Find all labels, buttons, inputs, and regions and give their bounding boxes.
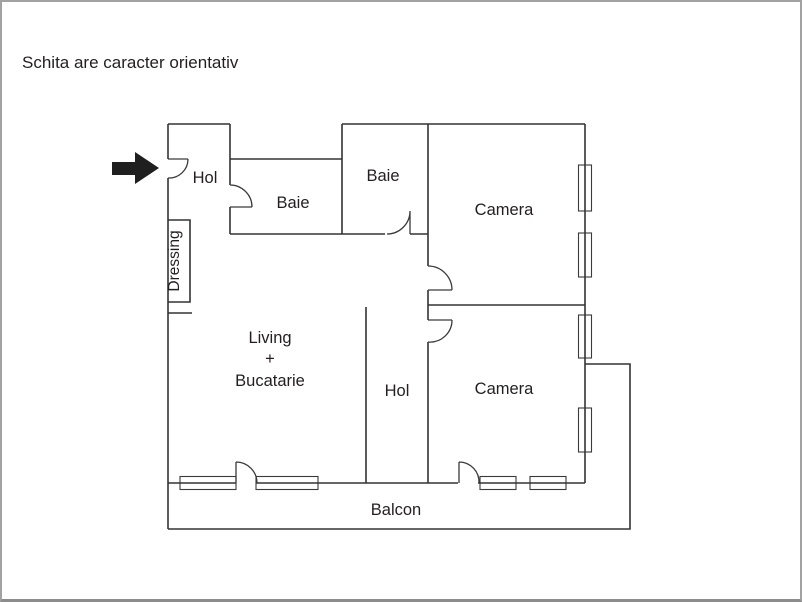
room-label-living-line3: Bucatarie — [235, 372, 305, 390]
room-label-entry-hall: Hol — [193, 169, 218, 187]
bedroom1-door-swing-icon — [428, 266, 452, 290]
entrance-door-swing-icon — [168, 159, 188, 178]
room-label-bathroom-2: Baie — [366, 167, 399, 185]
living-balcony-door-swing-icon — [236, 462, 257, 483]
room-label-balcony: Balcon — [371, 501, 421, 519]
bathroom2-door-swing-icon — [387, 211, 410, 234]
door-group — [168, 159, 479, 483]
bathroom1-door-swing-icon — [230, 185, 252, 207]
room-labels: Hol Baie Baie Camera Dressing Living + B… — [166, 167, 534, 519]
room-label-living-line2: + — [265, 350, 275, 368]
entrance-arrow-icon — [112, 152, 159, 184]
room-label-dressing: Dressing — [166, 230, 183, 291]
floorplan-page: Schita are caracter orientativ — [0, 0, 802, 602]
room-label-living-line1: Living — [248, 329, 291, 347]
room-label-bedroom-2: Camera — [475, 380, 535, 398]
room-label-bedroom-1: Camera — [475, 201, 535, 219]
bedroom2-balcony-door-swing-icon — [459, 462, 479, 483]
room-label-corridor: Hol — [385, 382, 410, 400]
bedroom2-door-swing-icon — [428, 320, 452, 342]
floorplan-canvas: Schita are caracter orientativ — [2, 2, 800, 599]
disclaimer-text: Schita are caracter orientativ — [22, 53, 239, 72]
room-label-bathroom-1: Baie — [276, 194, 309, 212]
